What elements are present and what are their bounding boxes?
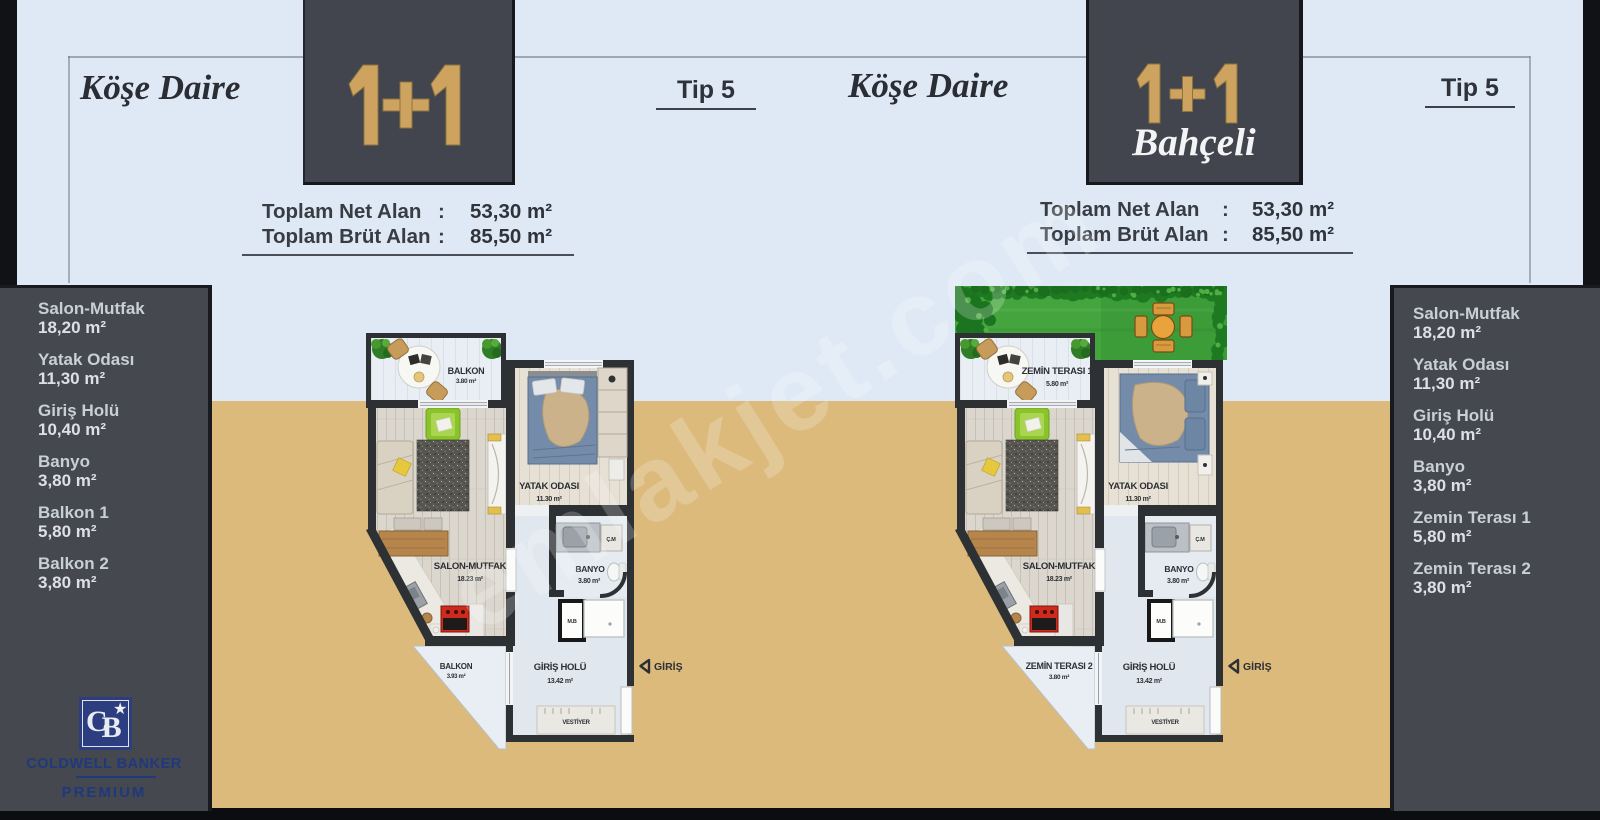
- svg-text:5.80 m²: 5.80 m²: [1046, 381, 1069, 388]
- svg-text:3.80 m²: 3.80 m²: [456, 378, 477, 385]
- svg-text:VESTİYER: VESTİYER: [562, 719, 590, 726]
- svg-text:13.42 m²: 13.42 m²: [547, 678, 574, 685]
- svg-text:ZEMİN TERASI 2: ZEMİN TERASI 2: [1026, 661, 1093, 671]
- svg-text:3.80 m²: 3.80 m²: [1049, 674, 1070, 681]
- svg-text:BALKON: BALKON: [448, 366, 485, 376]
- svg-text:M.B: M.B: [567, 619, 577, 625]
- svg-text:GİRİŞ: GİRİŞ: [654, 660, 683, 673]
- svg-text:GİRİŞ HOLÜ: GİRİŞ HOLÜ: [534, 662, 587, 673]
- svg-text:ZEMİN TERASI 1: ZEMİN TERASI 1: [1022, 366, 1094, 377]
